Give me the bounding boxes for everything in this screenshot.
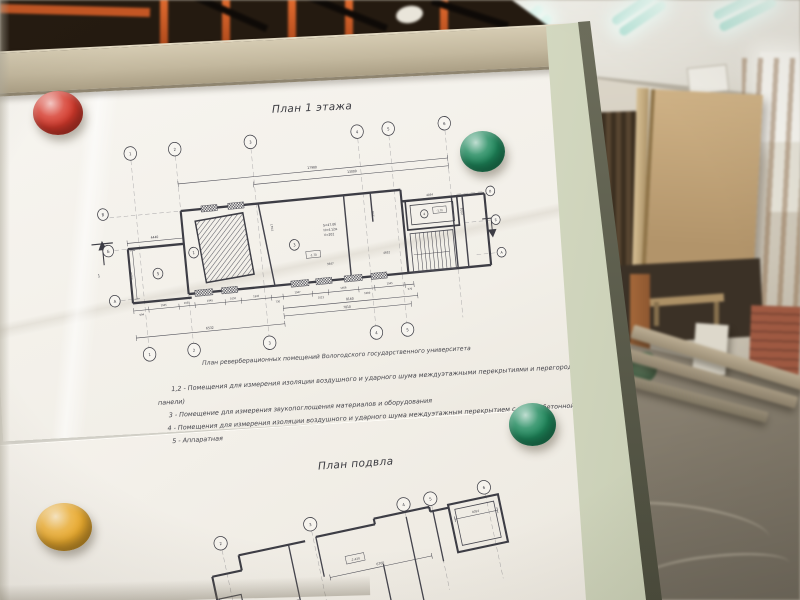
- svg-text:V=202: V=202: [324, 232, 335, 237]
- svg-text:4440: 4440: [150, 235, 158, 240]
- svg-text:1947: 1947: [294, 290, 301, 295]
- svg-text:730: 730: [275, 299, 280, 304]
- svg-text:8160: 8160: [346, 296, 354, 301]
- svg-text:1945: 1945: [253, 294, 260, 299]
- photo-of-flipchart-with-floor-plans: План 1 этажа: [0, 0, 800, 600]
- svg-text:1945: 1945: [207, 298, 214, 303]
- room-number-circles: [149, 209, 431, 279]
- svg-text:1050: 1050: [230, 296, 237, 301]
- axis-grid-lines: [104, 126, 502, 350]
- svg-text:5: 5: [157, 271, 160, 276]
- svg-text:1945: 1945: [386, 281, 393, 286]
- svg-text:2017: 2017: [270, 223, 275, 231]
- svg-text:994: 994: [139, 312, 144, 317]
- ceiling-vent: [687, 64, 730, 95]
- svg-text:570: 570: [407, 286, 412, 291]
- svg-text:4054: 4054: [472, 509, 480, 514]
- svg-text:1945: 1945: [160, 303, 167, 308]
- svg-text:1050: 1050: [184, 300, 191, 305]
- svg-text:6532: 6532: [206, 326, 214, 331]
- bench-leg: [714, 302, 719, 326]
- plywood-panel: [641, 89, 763, 287]
- rack-beam: [0, 4, 150, 17]
- svg-text:1080: 1080: [364, 290, 371, 295]
- svg-text:1956: 1956: [340, 285, 347, 290]
- svg-text:1023: 1023: [318, 295, 325, 300]
- svg-text:3190: 3190: [129, 272, 134, 280]
- svg-text:17980: 17980: [307, 165, 317, 170]
- magnet-yellow: [36, 503, 92, 551]
- svg-text:4054: 4054: [426, 192, 433, 197]
- magnet-red: [33, 91, 83, 135]
- magnet-green: [460, 131, 505, 172]
- bench-leg: [654, 302, 659, 326]
- svg-text:-1.70: -1.70: [310, 253, 317, 258]
- rack-post: [160, 0, 168, 46]
- svg-text:2031: 2031: [459, 207, 464, 215]
- svg-text:-1.70: -1.70: [436, 208, 443, 213]
- svg-text:4: 4: [423, 212, 425, 216]
- svg-text:13000: 13000: [347, 169, 357, 174]
- staircase: [410, 230, 456, 273]
- svg-text:1: 1: [98, 273, 101, 278]
- svg-text:528: 528: [371, 211, 375, 217]
- svg-text:3547: 3547: [327, 261, 334, 266]
- svg-text:4632: 4632: [383, 250, 390, 255]
- board-left-edge-highlight: [0, 0, 10, 600]
- floor-plan-1-drawing: 1 2 3 4 5 6 1 2 3 4 5 В Б А В Б А 5 1 3: [80, 104, 520, 371]
- basement-dim-lines: [323, 507, 504, 580]
- white-helmet: [395, 4, 425, 25]
- svg-text:3: 3: [293, 242, 296, 247]
- svg-text:7810: 7810: [343, 305, 351, 310]
- svg-text:1: 1: [192, 250, 195, 255]
- magnet-green: [509, 403, 556, 446]
- reverberation-chamber-hatch: [195, 212, 255, 283]
